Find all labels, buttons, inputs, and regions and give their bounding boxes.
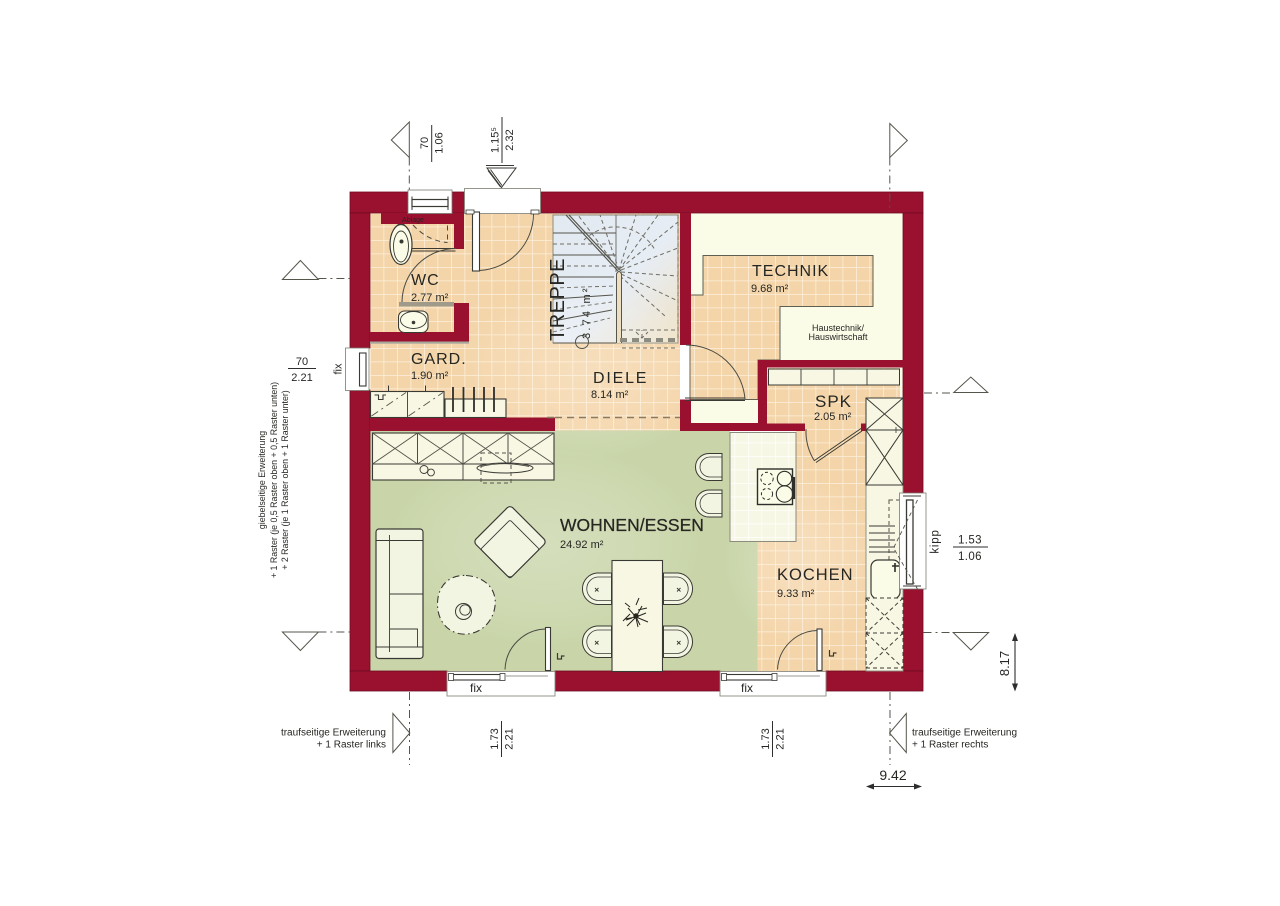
svg-text:kipp: kipp [930, 529, 942, 553]
svg-text:70: 70 [296, 356, 308, 368]
svg-text:Ablage: Ablage [402, 217, 424, 224]
svg-text:1.15⁵: 1.15⁵ [490, 127, 502, 153]
svg-text:+ 2 Raster (je 1 Raster oben +: + 2 Raster (je 1 Raster oben + 1 Raster … [280, 390, 290, 570]
svg-text:SPK: SPK [815, 392, 852, 411]
svg-text:9.42: 9.42 [879, 767, 906, 783]
svg-text:2.77 m²: 2.77 m² [411, 292, 449, 304]
svg-text:24.92 m²: 24.92 m² [560, 539, 604, 551]
svg-text:1.73: 1.73 [760, 728, 772, 749]
svg-text:1.53: 1.53 [958, 535, 982, 547]
svg-text:+ 1 Raster (je 0,5 Raster oben: + 1 Raster (je 0,5 Raster oben + 0,5 Ras… [269, 382, 279, 578]
svg-text:8.14 m²: 8.14 m² [591, 389, 629, 401]
svg-text:2.21: 2.21 [775, 728, 787, 749]
svg-text:9.68 m²: 9.68 m² [751, 283, 789, 295]
svg-text:1.73: 1.73 [489, 728, 501, 749]
svg-text:1.90 m²: 1.90 m² [411, 370, 449, 382]
svg-text:fix: fix [741, 681, 753, 695]
svg-text:fix: fix [470, 681, 482, 695]
svg-text:TECHNIK: TECHNIK [752, 263, 829, 280]
svg-text:WOHNEN/ESSEN: WOHNEN/ESSEN [560, 515, 704, 535]
svg-text:DIELE: DIELE [593, 370, 648, 387]
svg-text:GARD.: GARD. [411, 351, 467, 368]
svg-text:KOCHEN: KOCHEN [777, 566, 854, 584]
svg-text:traufseitige Erweiterung: traufseitige Erweiterung [912, 728, 1017, 739]
svg-text:9.33 m²: 9.33 m² [777, 588, 815, 600]
svg-text:traufseitige Erweiterung: traufseitige Erweiterung [281, 728, 386, 739]
svg-text:Hauswirtschaft: Hauswirtschaft [808, 332, 868, 342]
svg-text:+ 1 Raster links: + 1 Raster links [317, 740, 386, 751]
svg-text:giebelseitige Erweiterung: giebelseitige Erweiterung [257, 431, 267, 529]
svg-text:+ 1 Raster rechts: + 1 Raster rechts [912, 740, 988, 751]
svg-text:WC: WC [411, 272, 440, 289]
svg-text:2.32: 2.32 [504, 129, 516, 150]
svg-text:2.21: 2.21 [504, 728, 516, 749]
svg-text:1.06: 1.06 [958, 551, 982, 563]
svg-text:70: 70 [419, 137, 431, 149]
svg-text:TREPPE: TREPPE [547, 258, 569, 341]
svg-text:fix: fix [333, 363, 345, 375]
svg-text:2.21: 2.21 [291, 372, 312, 384]
svg-text:3.74 m²: 3.74 m² [581, 286, 593, 339]
svg-text:8.17: 8.17 [997, 651, 1012, 676]
svg-text:1.06: 1.06 [434, 132, 446, 153]
svg-text:2.05 m²: 2.05 m² [814, 411, 852, 423]
